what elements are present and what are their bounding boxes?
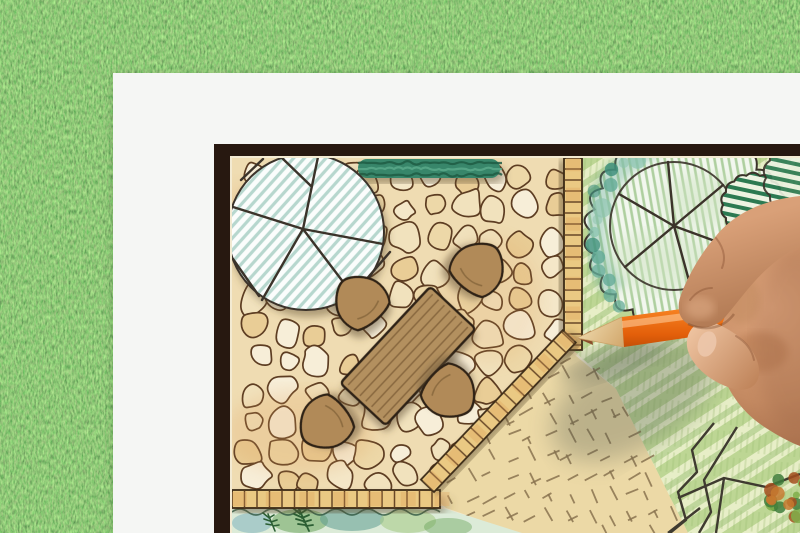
flagstone [426,195,446,215]
brick-edging-vertical [564,158,582,350]
brick-wash [566,158,580,171]
scene-svg [0,0,800,533]
brick-wash [232,492,247,506]
brick-wash [300,492,315,506]
teal-scallop [588,185,601,198]
teal-scallop [585,238,600,253]
teal-scallop [592,264,606,278]
plant-dab [783,499,794,510]
teal-scallop [592,198,611,217]
brick-wash [566,307,580,320]
flagstone [276,319,299,348]
brick-wash [333,492,348,506]
teal-scallop [619,158,629,168]
flagstone [538,290,562,317]
teal-scallop [604,178,618,192]
brick-wash [266,492,281,506]
flagstone [278,471,299,492]
plant-dab [772,474,784,486]
flagstone [481,196,505,223]
photo-canvas [0,0,800,533]
brick-wash [566,247,580,260]
teal-scallop [603,274,616,287]
brick-wash [566,217,580,230]
teal-scallop [613,300,625,312]
teal-scallop [605,163,618,176]
plant-dab [771,487,785,501]
brick-wash [401,492,416,506]
brick-edging-bottom [232,490,450,508]
brick-wash [435,492,450,506]
brick-wash [566,277,580,290]
flagstone [303,326,324,347]
teal-scallop [604,289,618,303]
flagstone [303,345,329,376]
brick-wash [566,188,580,201]
brick-wash [367,492,382,506]
flagstone [428,223,452,250]
teal-scallop [589,227,599,237]
hedge-row [358,159,502,178]
